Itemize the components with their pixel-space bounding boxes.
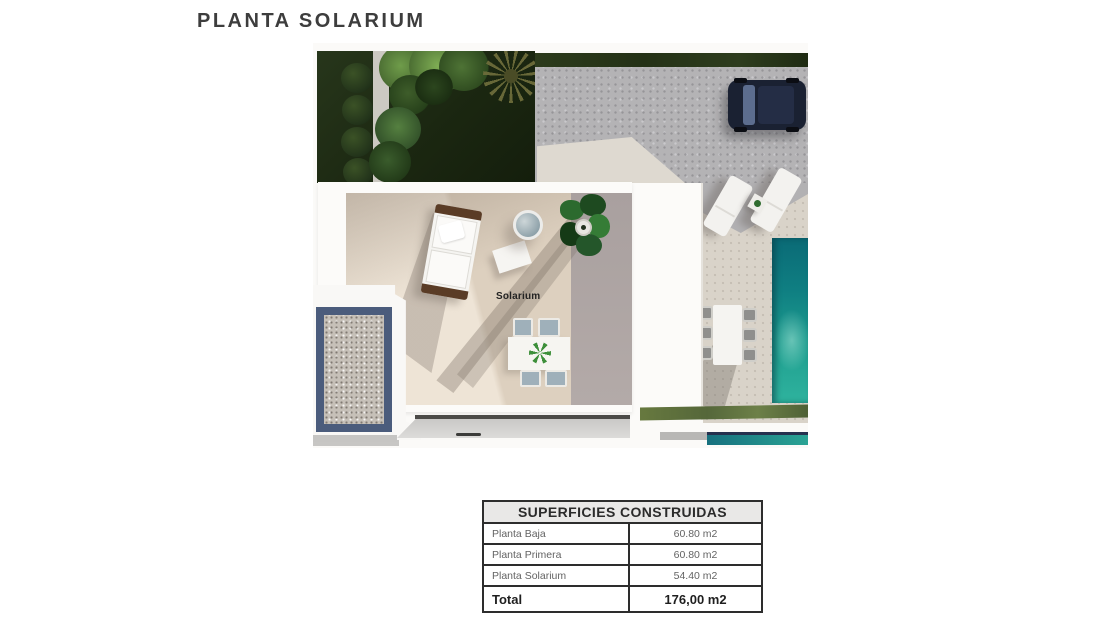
dining-chair (742, 348, 757, 362)
row-value: 60.80 m2 (630, 524, 761, 543)
patio-table (508, 337, 570, 370)
patio-chair (520, 370, 541, 387)
patio-chair (545, 370, 567, 387)
bush (341, 127, 373, 157)
table-plant (529, 342, 551, 364)
hedge-strip-top (535, 53, 808, 67)
car-wheel (786, 78, 799, 83)
table-row: Planta Baja 60.80 m2 (484, 524, 761, 545)
areas-table: SUPERFICIES CONSTRUIDAS Planta Baja 60.8… (482, 500, 763, 613)
row-label: Planta Solarium (484, 566, 630, 585)
floor-plan-render: Solarium (313, 43, 808, 448)
car-wheel (734, 78, 747, 83)
areas-table-header: SUPERFICIES CONSTRUIDAS (484, 502, 761, 524)
driveway-paving (535, 67, 808, 183)
dining-chair (742, 328, 757, 342)
edge-marker (456, 433, 481, 436)
plant-cluster (415, 69, 453, 105)
outdoor-dining-table (713, 305, 742, 365)
parked-car (728, 80, 806, 130)
patio-chair (538, 318, 560, 337)
total-label: Total (484, 587, 630, 611)
plant-cluster (369, 141, 411, 183)
row-value: 60.80 m2 (630, 545, 761, 564)
daybed-cushion (425, 249, 471, 289)
patio-chair (513, 318, 533, 337)
garden-lawn (317, 51, 535, 183)
bush (342, 95, 373, 125)
round-glass-table (513, 210, 543, 240)
swimming-pool (772, 238, 808, 403)
table-row: Planta Primera 60.80 m2 (484, 545, 761, 566)
table-total-row: Total 176,00 m2 (484, 587, 761, 611)
car-wheel (786, 127, 799, 132)
dining-chair (742, 308, 757, 322)
gravel-roof-panel (316, 307, 392, 432)
ground-shadow-band (397, 419, 630, 438)
bush (341, 63, 373, 93)
row-label: Planta Baja (484, 524, 630, 543)
page-title: PLANTA SOLARIUM (197, 10, 426, 33)
total-value: 176,00 m2 (630, 587, 761, 611)
ground-floor-pool-edge (707, 432, 808, 445)
solarium-label: Solarium (496, 291, 540, 302)
page: PLANTA SOLARIUM (0, 0, 1110, 626)
plant-leaf (580, 194, 606, 216)
row-label: Planta Primera (484, 545, 630, 564)
car-wheel (734, 127, 747, 132)
plant-leaf (576, 234, 602, 256)
parapet-edge-line (415, 415, 630, 419)
white-wall (632, 183, 703, 420)
potted-plant (558, 196, 610, 258)
lower-terrace-edge (660, 432, 707, 440)
plant-pot (575, 219, 592, 236)
palm-tree (483, 51, 535, 103)
row-value: 54.40 m2 (630, 566, 761, 585)
entrance-path (537, 137, 685, 183)
ground-shadow-left (313, 435, 397, 442)
table-row: Planta Solarium 54.40 m2 (484, 566, 761, 587)
